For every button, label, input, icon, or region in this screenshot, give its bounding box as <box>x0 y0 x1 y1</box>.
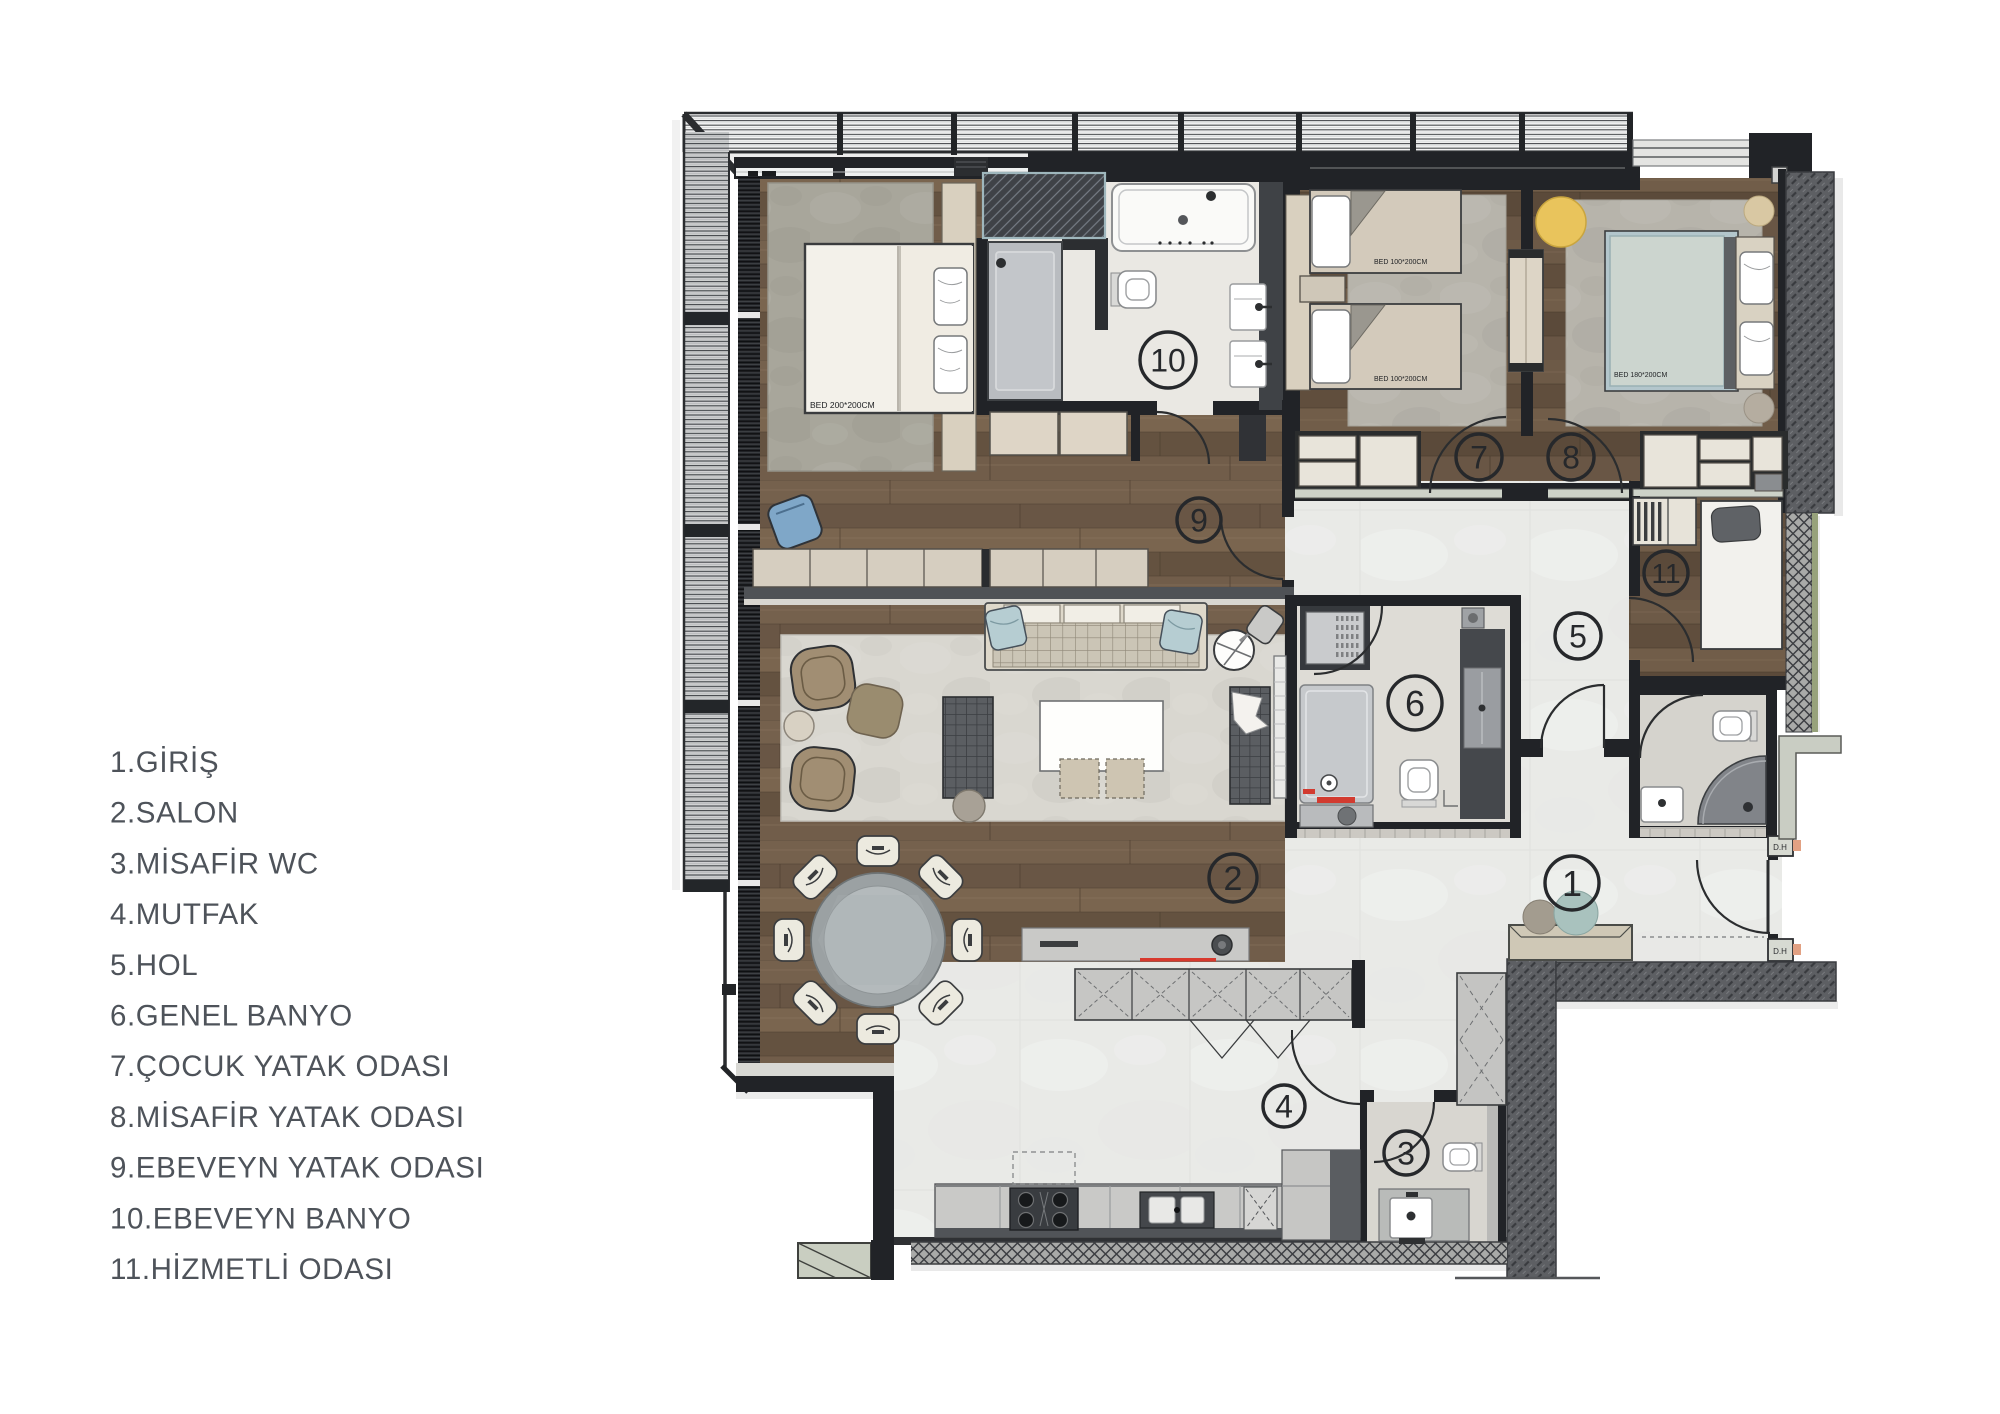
svg-text:1.GİRİŞ: 1.GİRİŞ <box>110 746 219 779</box>
svg-text:2: 2 <box>1224 860 1243 898</box>
svg-text:9: 9 <box>1190 503 1208 539</box>
svg-text:5: 5 <box>1569 619 1587 655</box>
svg-text:11.HİZMETLİ ODASI: 11.HİZMETLİ ODASI <box>110 1253 393 1286</box>
svg-text:3: 3 <box>1397 1136 1415 1172</box>
svg-text:BED 200*200CM: BED 200*200CM <box>810 400 875 410</box>
svg-text:D.H: D.H <box>1773 947 1787 956</box>
svg-text:1: 1 <box>1562 863 1582 904</box>
svg-text:10.EBEVEYN BANYO: 10.EBEVEYN BANYO <box>110 1202 411 1235</box>
svg-text:7: 7 <box>1470 440 1488 476</box>
svg-text:11: 11 <box>1651 558 1680 589</box>
svg-text:D.H: D.H <box>1773 843 1787 852</box>
svg-text:BED 100*200CM: BED 100*200CM <box>1374 259 1427 266</box>
svg-text:4.MUTFAK: 4.MUTFAK <box>110 898 259 931</box>
svg-text:BED 100*200CM: BED 100*200CM <box>1374 376 1427 383</box>
svg-text:4: 4 <box>1275 1089 1293 1125</box>
svg-text:6: 6 <box>1405 683 1425 724</box>
svg-text:6.GENEL BANYO: 6.GENEL BANYO <box>110 1000 353 1033</box>
svg-text:7.ÇOCUK YATAK ODASI: 7.ÇOCUK YATAK ODASI <box>110 1050 450 1083</box>
svg-text:BED 180*200CM: BED 180*200CM <box>1614 372 1667 379</box>
svg-text:9.EBEVEYN YATAK ODASI: 9.EBEVEYN YATAK ODASI <box>110 1152 484 1185</box>
svg-text:3.MİSAFİR WC: 3.MİSAFİR WC <box>110 847 319 880</box>
svg-text:10: 10 <box>1150 343 1186 379</box>
svg-text:8.MİSAFİR YATAK ODASI: 8.MİSAFİR YATAK ODASI <box>110 1101 465 1134</box>
svg-text:2.SALON: 2.SALON <box>110 797 239 830</box>
svg-text:8: 8 <box>1562 440 1580 476</box>
svg-text:5.HOL: 5.HOL <box>110 949 198 982</box>
